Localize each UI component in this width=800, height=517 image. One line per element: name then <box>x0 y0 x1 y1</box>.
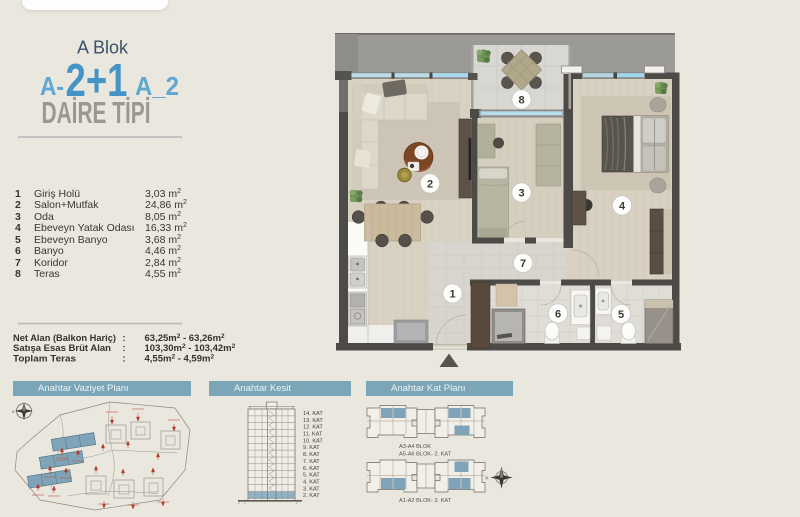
svg-text:8. KAT: 8. KAT <box>303 452 320 458</box>
svg-text:K: K <box>12 409 15 414</box>
svg-text:5: 5 <box>618 309 624 321</box>
svg-text:3. KAT: 3. KAT <box>303 486 320 492</box>
svg-text:5. KAT: 5. KAT <box>303 473 320 479</box>
svg-text:A5-A6 BLOK- 2. KAT: A5-A6 BLOK- 2. KAT <box>399 452 452 458</box>
svg-text:7: 7 <box>520 258 526 270</box>
svg-text:11. KAT: 11. KAT <box>303 432 323 438</box>
svg-text::: : <box>123 353 126 364</box>
svg-text:2. KAT: 2. KAT <box>303 493 320 499</box>
svg-text:1: 1 <box>449 288 455 300</box>
svg-text:A1-A2 BLOK- 2. KAT: A1-A2 BLOK- 2. KAT <box>399 498 452 504</box>
svg-text:4,55m2 - 4,59m2: 4,55m2 - 4,59m2 <box>145 353 215 364</box>
svg-text:A3-A4 BLOK: A3-A4 BLOK <box>399 444 431 450</box>
svg-text:2: 2 <box>427 178 433 190</box>
svg-text:12. KAT: 12. KAT <box>303 425 323 431</box>
svg-text:14. KAT: 14. KAT <box>303 411 323 417</box>
svg-text:K: K <box>486 476 489 481</box>
svg-text:13. KAT: 13. KAT <box>303 418 323 424</box>
svg-text:DAİRE TİPİ: DAİRE TİPİ <box>42 95 151 130</box>
svg-text:7. KAT: 7. KAT <box>303 459 320 465</box>
svg-text:3: 3 <box>518 187 524 199</box>
svg-text:6. KAT: 6. KAT <box>303 466 320 472</box>
svg-text:8: 8 <box>518 94 524 106</box>
svg-text:6: 6 <box>555 308 561 320</box>
svg-text:4. KAT: 4. KAT <box>303 480 320 486</box>
svg-text:Toplam Teras: Toplam Teras <box>13 353 76 364</box>
svg-text:9. KAT: 9. KAT <box>303 445 320 451</box>
svg-text:4: 4 <box>619 200 626 212</box>
svg-text:10. KAT: 10. KAT <box>303 438 323 444</box>
